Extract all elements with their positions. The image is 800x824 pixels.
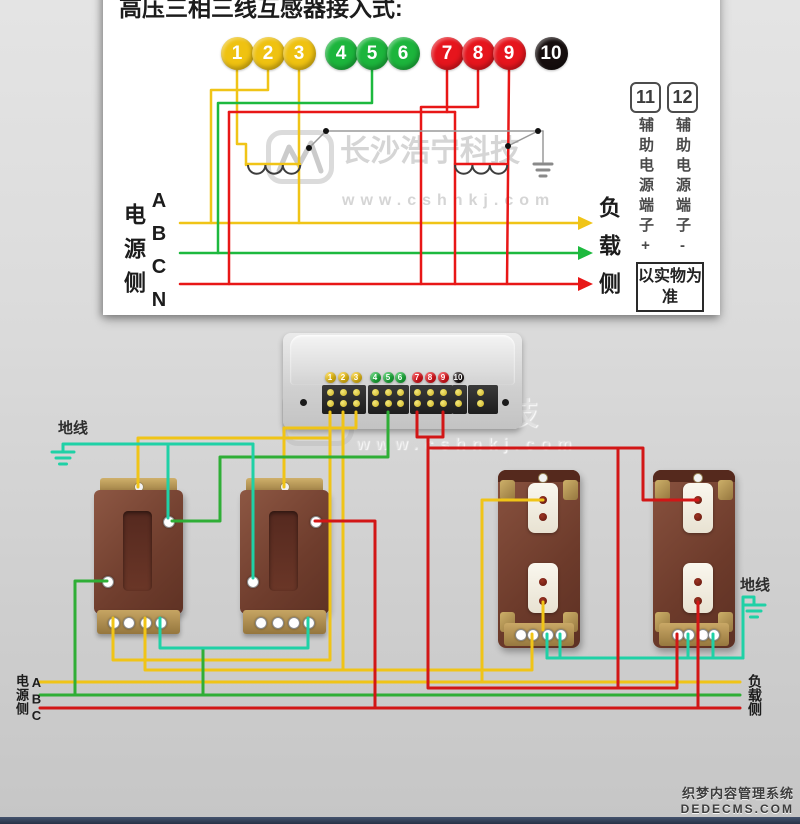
ct2-base-screw-4 [708, 629, 720, 641]
phase-labels-top: ABCN [147, 190, 170, 322]
pt2-secondary-terminal-left [247, 576, 259, 588]
ct1-plate-bottom [528, 563, 558, 613]
meter-screw-6 [414, 389, 421, 396]
terminal-4: 4 [370, 372, 381, 383]
watermark-company: 长沙浩宁科技 [340, 126, 520, 170]
meter-screw-9 [455, 389, 462, 396]
terminal-7: 7 [412, 372, 423, 383]
ct2-corner-tr [718, 480, 733, 500]
aux-terminal-12-label: 辅助电源端子- [672, 117, 693, 259]
meter-screw-3 [372, 389, 379, 396]
meter-screw-7 [427, 389, 434, 396]
pt1-base-screw-2 [123, 617, 135, 629]
ct2-plate-top [683, 483, 713, 533]
ct2-corner-tl [655, 480, 670, 500]
terminal-8: 8 [425, 372, 436, 383]
watermark-logo-zigzag [271, 135, 329, 179]
pt2-base-screw-4 [303, 617, 315, 629]
diagram-title: 高压三相三线互感器接入式: [119, 0, 403, 23]
meter-screw-4 [385, 389, 392, 396]
terminal-3: 3 [283, 37, 316, 70]
ct1-terminal-p1 [539, 496, 547, 504]
aux-terminal-11-label: 辅助电源端子+ [635, 117, 656, 259]
pt2-core-window [269, 511, 298, 591]
meter-screw-1 [340, 389, 347, 396]
pt1-base-screw-1 [108, 617, 120, 629]
terminal-6: 6 [387, 37, 420, 70]
voltage-transformer-1 [92, 478, 185, 636]
cms-watermark: 织梦内容管理系统 DEDECMS.COM [681, 783, 794, 816]
aux-terminal-12-box: 12 [667, 82, 698, 113]
terminal-6: 6 [395, 372, 406, 383]
ct1-terminal-p2 [539, 513, 547, 521]
source-phase-labels-bottom: ABC [29, 675, 44, 725]
terminal-9: 9 [438, 372, 449, 383]
pt2-secondary-terminal-right [310, 516, 322, 528]
meter-screw-2 [353, 389, 360, 396]
ct1-top-screw [538, 473, 548, 483]
terminal-3: 3 [351, 372, 362, 383]
ct2-terminal-s2 [694, 597, 702, 605]
cms-watermark-line2: DEDECMS.COM [681, 802, 794, 816]
meter-screw-9 [455, 400, 462, 407]
ct1-corner-tl [500, 480, 515, 500]
source-side-label-top: 电源侧 [117, 203, 149, 305]
ct1-terminal-s1 [539, 578, 547, 586]
aux-terminal-11-box: 11 [630, 82, 661, 113]
meter-screw-0 [327, 389, 334, 396]
meter-screw-1 [340, 400, 347, 407]
terminal-4: 4 [325, 37, 358, 70]
meter-mount-hole-right [502, 399, 509, 406]
meter-screw-8 [440, 389, 447, 396]
terminal-1: 1 [325, 372, 336, 383]
meter-screw-10 [477, 389, 484, 396]
terminal-8: 8 [462, 37, 495, 70]
note-box: 以实物为准 [636, 262, 704, 312]
footer-bar [0, 817, 800, 824]
ct2-base-screw-2 [683, 629, 695, 641]
pt2-base-screw-1 [255, 617, 267, 629]
pt1-secondary-terminal-left [102, 576, 114, 588]
wire [145, 618, 532, 670]
terminal-10: 10 [535, 37, 568, 70]
meter-screw-5 [397, 389, 404, 396]
current-transformer-2 [653, 470, 735, 648]
ct1-base-screw-4 [555, 629, 567, 641]
pt1-secondary-terminal-right [163, 516, 175, 528]
terminal-9: 9 [493, 37, 526, 70]
pt2-base-screw-2 [272, 617, 284, 629]
meter-screw-7 [427, 400, 434, 407]
wiring-diagram-screenshot: 高压三相三线互感器接入式: 长沙浩宁科技 www.cshnkj.com 长沙浩宁… [0, 0, 800, 824]
terminal-2: 2 [252, 37, 285, 70]
meter-screw-2 [353, 400, 360, 407]
ground-label-left: 地线 [58, 417, 88, 438]
meter-screw-0 [327, 400, 334, 407]
meter-screw-5 [397, 400, 404, 407]
meter-screw-6 [414, 400, 421, 407]
meter-screw-8 [440, 400, 447, 407]
load-side-label-bottom: 负载侧 [745, 674, 765, 716]
ct2-terminal-s1 [694, 578, 702, 586]
ct2-terminal-p2 [694, 513, 702, 521]
cms-watermark-line1: 织梦内容管理系统 [681, 783, 794, 802]
watermark-url: www.cshnkj.com [342, 192, 555, 210]
ct2-plate-bottom [683, 563, 713, 613]
meter-screw-4 [385, 400, 392, 407]
pt2-base-screw-3 [288, 617, 300, 629]
current-transformer-1 [498, 470, 580, 648]
terminal-10: 10 [453, 372, 464, 383]
pt1-base-screw-3 [140, 617, 152, 629]
terminal-5: 5 [383, 372, 394, 383]
wire [743, 597, 754, 658]
ct1-corner-tr [563, 480, 578, 500]
ct1-plate-top [528, 483, 558, 533]
terminal-2: 2 [338, 372, 349, 383]
meter-screw-3 [372, 400, 379, 407]
meter-mount-hole-left [300, 399, 307, 406]
terminal-7: 7 [431, 37, 464, 70]
voltage-transformer-2 [238, 478, 331, 636]
ct1-terminal-s2 [539, 597, 547, 605]
ct2-top-screw [693, 473, 703, 483]
watermark-url-mid: www.cshnkj.com [356, 434, 577, 454]
terminal-1: 1 [221, 37, 254, 70]
watermark-logo [266, 130, 334, 184]
ct1-base-screw-2 [527, 629, 539, 641]
ct2-terminal-p1 [694, 496, 702, 504]
pt1-base-screw-4 [155, 617, 167, 629]
load-side-label-top: 负载侧 [592, 196, 624, 310]
pt1-core-window [123, 511, 152, 591]
terminal-5: 5 [356, 37, 389, 70]
ct1-base-screw-1 [515, 629, 527, 641]
ct1-base-screw-3 [542, 629, 554, 641]
meter-screw-10 [477, 400, 484, 407]
ground-label-right: 地线 [740, 574, 770, 595]
